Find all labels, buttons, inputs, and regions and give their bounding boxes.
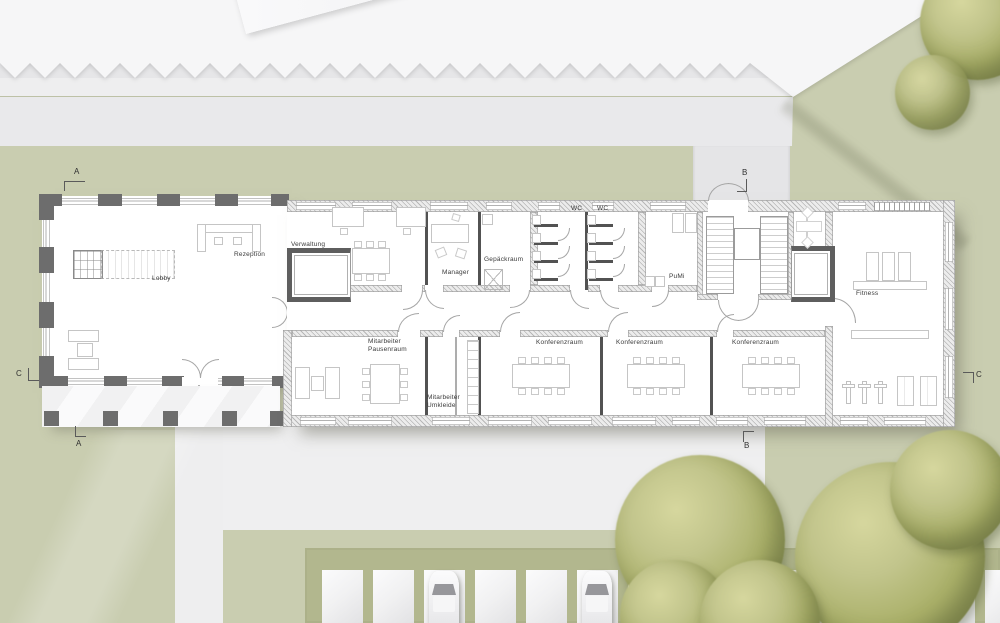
parking-stall: [373, 570, 414, 623]
section-line: [743, 431, 744, 442]
storage-box: [482, 214, 493, 225]
window: [650, 202, 686, 210]
exterior-wall-left-lower: [283, 330, 292, 427]
window: [430, 202, 468, 210]
elevator-car: [794, 253, 828, 295]
toilet: [587, 251, 596, 261]
room-label-manager: Manager: [442, 269, 469, 277]
section-line: [75, 436, 86, 437]
window: [840, 417, 868, 425]
porch-pillar: [222, 411, 237, 426]
chair: [646, 357, 654, 364]
room-label-verwaltung: Verwaltung: [291, 241, 325, 249]
section-marker-c-right: C: [976, 370, 982, 379]
elevator: [791, 246, 835, 302]
window: [838, 202, 866, 210]
window: [488, 417, 532, 425]
chair: [518, 388, 526, 395]
spin-bike-handle: [874, 384, 887, 388]
chair: [400, 368, 408, 375]
site-plan-canvas: Lobby Rezeption Verwaltung Manager Gepäc…: [0, 0, 1000, 623]
chair: [518, 357, 526, 364]
chair: [787, 357, 795, 364]
chair: [354, 274, 362, 281]
room-label-umkleide-line2: Umkleide: [427, 402, 460, 410]
corridor-wall: [520, 330, 608, 337]
chair: [646, 388, 654, 395]
chair: [366, 241, 374, 248]
spin-bike-handle: [858, 384, 871, 388]
gym-mat: [882, 252, 895, 281]
reception-stool: [233, 237, 242, 245]
neighbor-building-sawtooth-roof: [0, 0, 947, 98]
toilet: [532, 215, 541, 225]
chair: [557, 357, 565, 364]
chair: [366, 274, 374, 281]
window: [672, 417, 700, 425]
spin-bike-handle: [842, 384, 855, 388]
pillar: [98, 194, 122, 206]
window: [884, 417, 926, 425]
meeting-table: [352, 248, 390, 274]
parked-car: [582, 571, 612, 623]
room-label-wc-left: WC: [571, 205, 582, 213]
chair: [400, 394, 408, 401]
sofa: [295, 367, 310, 399]
room-label-gepaeckraum: Gepäckraum: [484, 256, 523, 264]
break-table: [370, 364, 400, 404]
gym-shelf: [851, 330, 929, 339]
chair: [774, 388, 782, 395]
window: [548, 417, 592, 425]
toilet: [532, 233, 541, 243]
corridor-wall: [420, 330, 443, 337]
reception-desk: [252, 224, 261, 252]
corridor-wall: [588, 285, 600, 292]
chair: [672, 388, 680, 395]
chair: [362, 368, 370, 375]
porch-pillar: [103, 411, 118, 426]
grass-highlight: [0, 430, 230, 623]
room-label-fitness: Fitness: [856, 290, 878, 298]
section-marker-b-top: B: [742, 168, 747, 177]
room-label-konferenzraum-2: Konferenzraum: [616, 339, 663, 347]
gym-mat: [898, 252, 911, 281]
tree: [895, 55, 970, 130]
porch-pillar: [163, 411, 178, 426]
room-label-konferenzraum-3: Konferenzraum: [732, 339, 779, 347]
pillar: [39, 247, 54, 273]
chair: [531, 388, 539, 395]
section-line: [64, 181, 85, 182]
porch-pillar: [44, 411, 59, 426]
chair: [774, 357, 782, 364]
chair: [354, 241, 362, 248]
chair: [557, 388, 565, 395]
elevator: [287, 248, 351, 302]
stair-core-wall: [697, 212, 703, 300]
section-marker-a-top: A: [74, 167, 79, 176]
chair: [633, 357, 641, 364]
room-label-konferenzraum-1: Konferenzraum: [536, 339, 583, 347]
chair: [748, 357, 756, 364]
corridor-wall: [733, 330, 825, 337]
chair: [761, 388, 769, 395]
toilet: [532, 251, 541, 261]
sink: [645, 276, 655, 287]
window: [764, 417, 806, 425]
stair-core-wall: [697, 294, 718, 300]
room-label-umkleide-line1: Mitarbeiter: [427, 394, 460, 402]
gym-mat: [866, 252, 879, 281]
room-label-lobby: Lobby: [152, 275, 171, 283]
section-marker-b-bottom: B: [744, 441, 749, 450]
fitness-wall: [825, 326, 833, 427]
pillar: [39, 194, 54, 220]
chair: [761, 357, 769, 364]
treadmill: [920, 376, 937, 406]
gym-shelf: [853, 281, 927, 290]
corridor-wall: [459, 330, 500, 337]
chair: [672, 357, 680, 364]
chair: [633, 388, 641, 395]
partition-wall: [600, 337, 603, 415]
window: [716, 417, 748, 425]
chair: [400, 381, 408, 388]
parking-stall: [985, 570, 1000, 623]
parking-stall: [475, 570, 516, 623]
north-entrance-opening: [708, 200, 748, 212]
sink: [655, 276, 665, 287]
chair: [544, 388, 552, 395]
chair: [659, 388, 667, 395]
chair: [378, 274, 386, 281]
room-label-pausenraum-line2: Pausenraum: [368, 346, 407, 354]
parking-stall: [322, 570, 363, 623]
corridor-wall: [668, 285, 697, 292]
shelf: [685, 213, 697, 233]
entrance-porch: [42, 386, 280, 427]
room-label-pausenraum: Mitarbeiter Pausenraum: [368, 338, 407, 353]
room-label-umkleide: Mitarbeiter Umkleide: [427, 394, 460, 409]
corridor-wall: [292, 330, 398, 337]
pillar: [157, 194, 180, 206]
chair: [748, 388, 756, 395]
window: [945, 288, 953, 330]
stair-flight: [760, 216, 788, 294]
lobby-bench: [68, 358, 99, 370]
section-marker-a-bottom: A: [76, 439, 81, 448]
window: [296, 202, 336, 210]
toilet: [532, 269, 541, 279]
lobby-table: [77, 343, 93, 357]
conference-table: [512, 364, 570, 388]
lockers: [467, 340, 479, 414]
conference-table: [627, 364, 685, 388]
window: [538, 202, 560, 210]
window: [612, 417, 656, 425]
chair: [362, 381, 370, 388]
pillar: [39, 356, 54, 388]
toilet: [587, 269, 596, 279]
chair: [531, 357, 539, 364]
section-line: [743, 431, 754, 432]
corridor-wall: [530, 285, 570, 292]
pillar: [215, 194, 238, 206]
toilet: [587, 215, 596, 225]
chair: [403, 228, 411, 235]
desk: [431, 224, 469, 243]
room-label-pumi: PuMi: [669, 273, 685, 281]
section-line: [64, 181, 65, 191]
toilet: [587, 233, 596, 243]
lobby-stair: [73, 250, 103, 279]
partition-wall: [638, 212, 646, 285]
stair-landing: [734, 228, 760, 260]
window: [348, 417, 392, 425]
room-label-wc-right: WC: [597, 205, 608, 213]
pillar: [39, 302, 54, 328]
lobby-bench: [68, 330, 99, 342]
treadmill: [897, 376, 914, 406]
chair: [362, 394, 370, 401]
room-label-pausenraum-line1: Mitarbeiter: [368, 338, 407, 346]
luggage-shelf: [484, 269, 503, 290]
section-marker-c-left: C: [16, 369, 22, 378]
gym-bench: [796, 221, 822, 232]
shelf: [672, 213, 684, 233]
parking-stall: [526, 570, 567, 623]
reception-desk: [197, 224, 206, 252]
partition-wall: [478, 212, 481, 285]
section-line: [28, 380, 39, 381]
stair-core-wall: [758, 294, 794, 300]
corridor-wall: [628, 330, 717, 337]
chair: [340, 228, 348, 235]
chair: [544, 357, 552, 364]
chair: [659, 357, 667, 364]
window: [486, 202, 512, 210]
section-line: [737, 191, 747, 192]
reception-stool: [214, 237, 223, 245]
partition-wall: [710, 337, 713, 415]
window: [945, 356, 953, 398]
room-label-rezeption: Rezeption: [234, 251, 265, 259]
section-line: [973, 372, 974, 383]
window: [432, 417, 470, 425]
sofa: [325, 367, 340, 399]
conference-table: [742, 364, 800, 388]
desk: [396, 207, 426, 227]
window: [945, 222, 953, 262]
desk: [332, 207, 364, 227]
louver-window: [874, 202, 930, 211]
tree: [890, 430, 1000, 550]
coffee-table: [311, 376, 324, 391]
parked-car: [429, 571, 459, 623]
stair-flight: [706, 216, 734, 294]
elevator-car: [294, 255, 348, 295]
chair: [787, 388, 795, 395]
chair: [378, 241, 386, 248]
window: [300, 417, 336, 425]
